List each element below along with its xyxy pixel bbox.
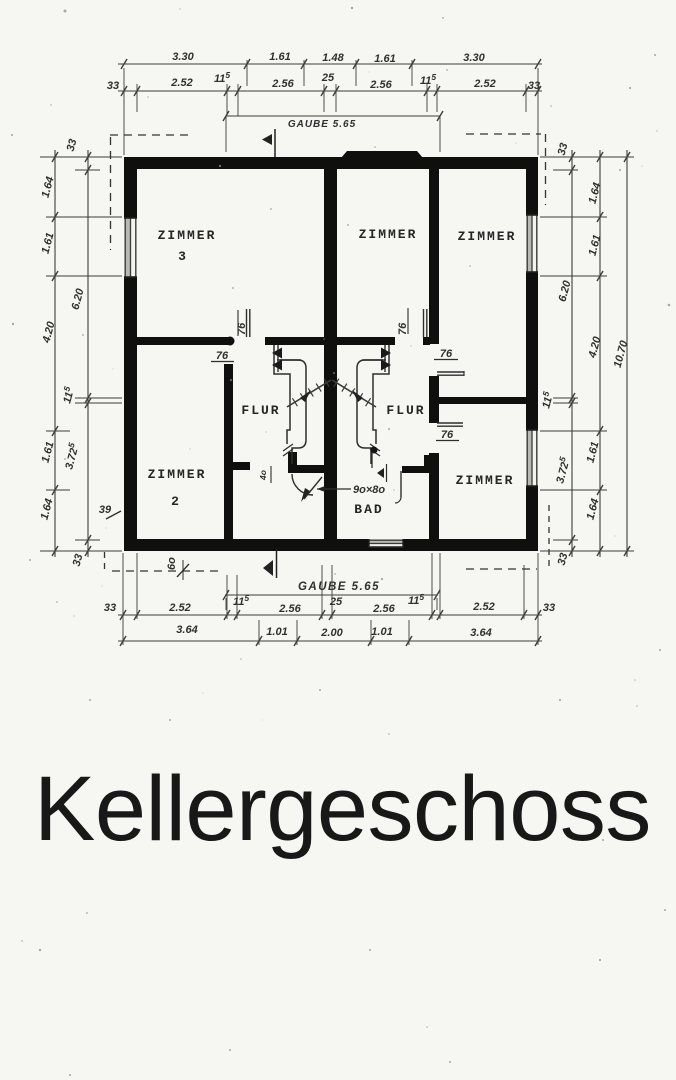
svg-text:3.30: 3.30 — [172, 51, 194, 63]
svg-text:ZIMMER: ZIMMER — [456, 473, 515, 488]
svg-text:9o×8o: 9o×8o — [353, 484, 385, 496]
svg-text:6o: 6o — [166, 557, 178, 570]
svg-text:ZIMMER: ZIMMER — [458, 229, 517, 244]
svg-text:ZIMMER: ZIMMER — [158, 228, 217, 243]
svg-text:GAUBE 5.65: GAUBE 5.65 — [288, 119, 356, 130]
svg-text:33: 33 — [107, 80, 119, 92]
svg-text:39: 39 — [99, 504, 112, 516]
svg-text:2.52: 2.52 — [168, 602, 190, 614]
svg-text:76: 76 — [441, 429, 454, 441]
svg-text:2.56: 2.56 — [369, 79, 392, 91]
svg-text:76: 76 — [397, 322, 409, 335]
svg-text:76: 76 — [440, 348, 453, 360]
svg-text:FLUR: FLUR — [241, 403, 280, 418]
svg-text:2.52: 2.52 — [473, 78, 495, 90]
svg-text:1.48: 1.48 — [322, 52, 344, 64]
svg-text:76: 76 — [216, 350, 229, 362]
svg-text:ZIMMER: ZIMMER — [148, 467, 207, 482]
svg-text:2.52: 2.52 — [472, 601, 494, 613]
svg-text:2.52: 2.52 — [170, 77, 192, 89]
svg-text:2.56: 2.56 — [278, 603, 301, 615]
svg-text:ZIMMER: ZIMMER — [359, 227, 418, 242]
svg-text:1.01: 1.01 — [266, 626, 287, 638]
svg-text:2.56: 2.56 — [271, 78, 294, 90]
svg-text:GAUBE 5.65: GAUBE 5.65 — [298, 581, 380, 593]
svg-text:3: 3 — [178, 249, 188, 264]
svg-text:Kellergeschoss: Kellergeschoss — [34, 758, 651, 860]
svg-text:FLUR: FLUR — [386, 403, 425, 418]
svg-text:33: 33 — [104, 602, 116, 614]
svg-text:1.61: 1.61 — [269, 51, 290, 63]
svg-text:1.61: 1.61 — [374, 53, 395, 65]
svg-text:2.00: 2.00 — [320, 627, 343, 639]
svg-text:4o: 4o — [258, 470, 268, 481]
svg-text:2.56: 2.56 — [372, 603, 395, 615]
svg-text:76: 76 — [236, 322, 248, 335]
svg-text:2: 2 — [171, 494, 181, 509]
svg-text:1.01: 1.01 — [371, 626, 392, 638]
svg-text:25: 25 — [321, 72, 335, 84]
svg-text:3.30: 3.30 — [463, 52, 485, 64]
svg-text:33: 33 — [543, 602, 555, 614]
svg-text:BAD: BAD — [354, 502, 383, 517]
svg-text:25: 25 — [329, 596, 343, 608]
svg-text:3.64: 3.64 — [176, 624, 197, 636]
svg-text:3.64: 3.64 — [470, 627, 491, 639]
